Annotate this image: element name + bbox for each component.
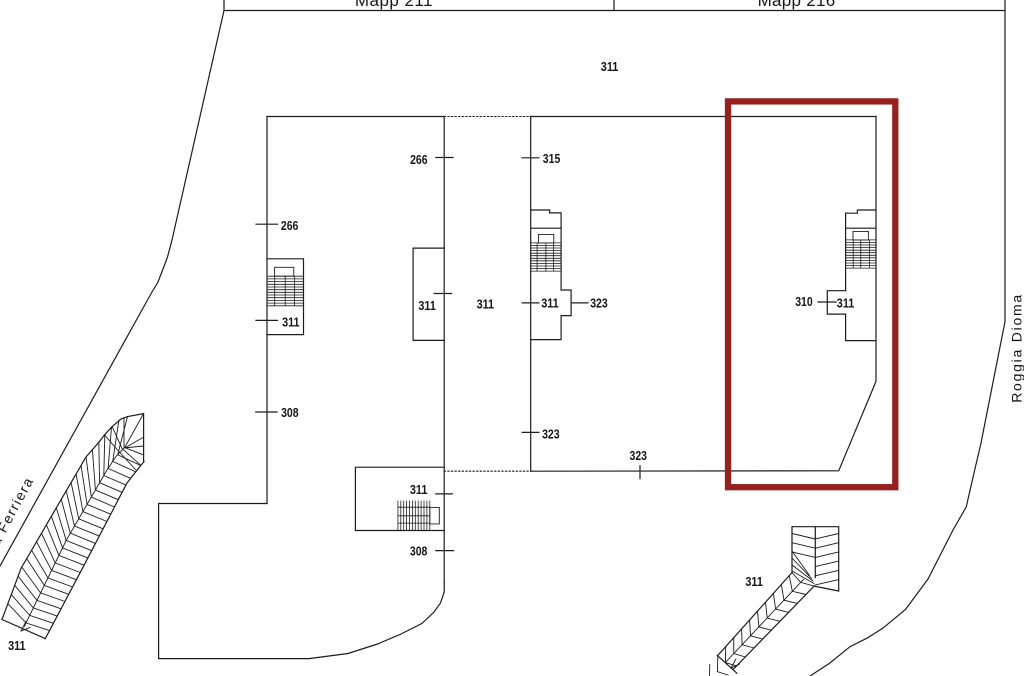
svg-text:315: 315 <box>543 151 561 166</box>
svg-text:311: 311 <box>282 314 300 329</box>
svg-text:311: 311 <box>418 298 436 313</box>
svg-text:266: 266 <box>281 218 299 233</box>
svg-text:311: 311 <box>601 59 619 74</box>
svg-text:266: 266 <box>410 152 428 167</box>
svg-text:311: 311 <box>541 296 559 311</box>
svg-text:311: 311 <box>8 638 26 653</box>
svg-text:323: 323 <box>630 448 648 463</box>
svg-text:323: 323 <box>542 427 560 442</box>
svg-text:Roggia Dioma: Roggia Dioma <box>1009 295 1024 403</box>
svg-text:311: 311 <box>745 574 763 589</box>
svg-text:308: 308 <box>410 543 428 558</box>
svg-text:Mapp 211: Mapp 211 <box>355 0 433 10</box>
svg-text:311: 311 <box>837 296 855 311</box>
svg-text:308: 308 <box>281 405 299 420</box>
svg-text:323: 323 <box>590 296 608 311</box>
svg-text:311: 311 <box>410 482 428 497</box>
svg-text:311: 311 <box>477 297 495 312</box>
svg-text:310: 310 <box>795 294 813 309</box>
svg-text:Mapp 216: Mapp 216 <box>758 0 836 10</box>
